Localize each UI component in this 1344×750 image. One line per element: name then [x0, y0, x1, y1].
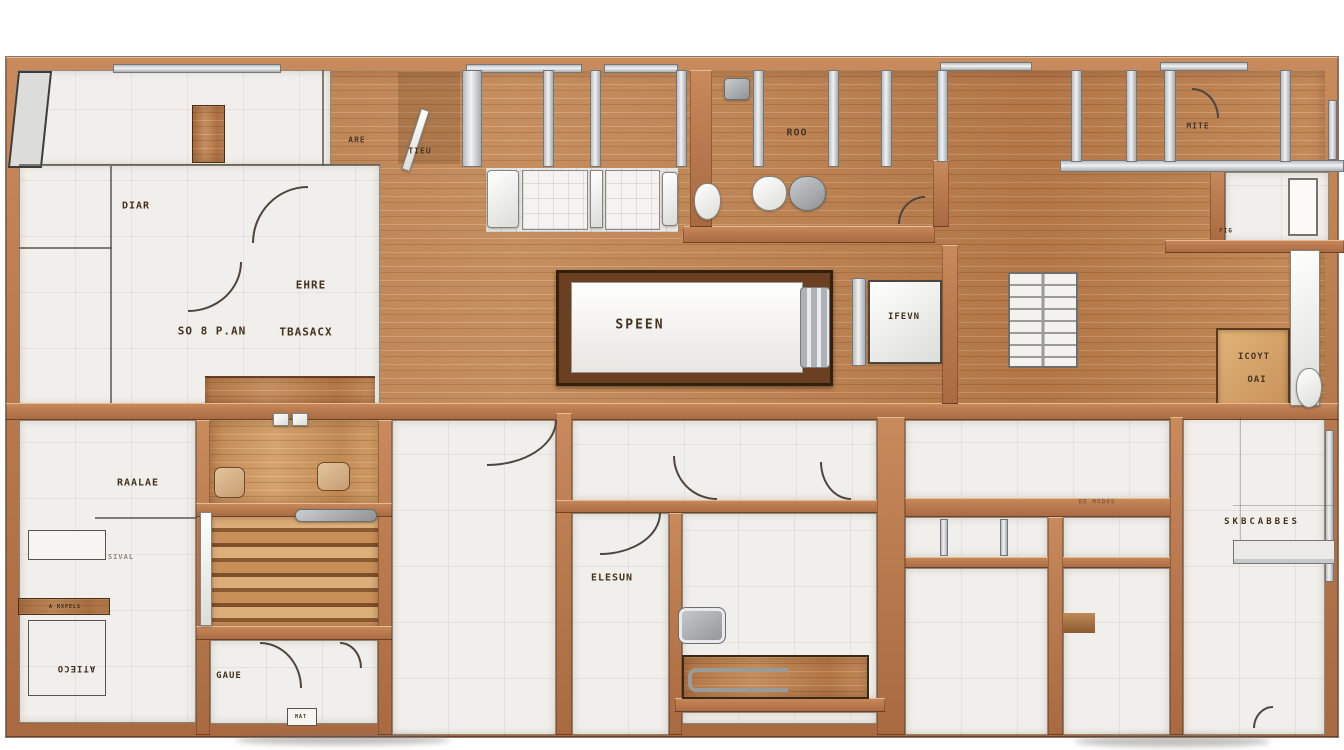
room-lower-center-strip — [682, 712, 877, 724]
wall-label-demodos: DE MODOS — [1079, 499, 1116, 506]
wall-v-hall — [556, 413, 572, 735]
interior-line — [19, 164, 380, 166]
wall-v-far-right — [1170, 417, 1183, 735]
room-label-tieu: TIEU — [408, 147, 431, 156]
room-lower-mid-a — [905, 568, 1048, 735]
locker-divider-2 — [1000, 519, 1008, 556]
room-upper-left-top — [19, 70, 331, 166]
room-label-mite: MITE — [1186, 122, 1209, 131]
wall-v-fridge — [942, 245, 958, 404]
interior-line — [19, 247, 112, 249]
room-label-elesun: ELESUN — [591, 573, 633, 584]
bath-divider — [590, 170, 603, 228]
room-lower-right-top — [905, 420, 1170, 499]
table-bolster — [800, 287, 830, 368]
toilet-fixture — [694, 183, 721, 220]
table-top — [571, 282, 803, 373]
room-label-speen: SPEEN — [615, 318, 664, 333]
pillar-8 — [937, 70, 948, 162]
room-label-roo: ROO — [786, 128, 807, 139]
room-label-gaue: GAUE — [216, 671, 242, 681]
room-label-oai: OAI — [1247, 375, 1266, 385]
wood-shelf-nub — [1063, 613, 1095, 633]
pillar-1 — [462, 70, 482, 167]
bed-fixture — [662, 172, 678, 226]
pillar-7 — [881, 70, 892, 167]
chair-fixture — [214, 467, 245, 498]
toilet-fixture — [1296, 368, 1322, 408]
sink-fixture — [678, 607, 726, 644]
room-label-are: ARE — [348, 136, 365, 145]
ground-shadow — [1075, 736, 1270, 747]
shower-grid — [522, 170, 588, 230]
window-right-edge-b — [1328, 100, 1337, 160]
bunk-rail — [200, 512, 212, 626]
room-lower-mid-b — [1063, 568, 1170, 735]
chair-fixture — [317, 462, 350, 491]
room-label-sival: SIVAL — [108, 553, 134, 561]
room-label-soban: SO 8 P.AN — [178, 325, 247, 338]
wall-h-lockers-top — [905, 498, 1183, 517]
pillar-10 — [1126, 70, 1137, 162]
wall-v-lower-left-b — [378, 420, 392, 735]
room-label-icoyt: ICOYT — [1238, 352, 1270, 362]
pillar-12 — [1280, 70, 1291, 162]
pillar-9 — [1071, 70, 1082, 162]
pillar-fridge — [852, 278, 866, 366]
floor-plan: ARE TIEU DIAR EHRE SO 8 P.AN TBASACX SPE… — [0, 0, 1344, 750]
interior-line — [322, 70, 324, 166]
pillar-4 — [676, 70, 687, 167]
counter-nub — [292, 413, 308, 426]
interior-line — [95, 517, 197, 519]
icoyt-cabinet — [1216, 328, 1290, 412]
fridge-unit — [868, 280, 942, 364]
interior-line — [110, 166, 112, 403]
wall-v-center — [933, 160, 949, 227]
counter-upper-left — [205, 376, 375, 403]
cistern-tank — [724, 78, 750, 100]
wall-h-lower-center — [556, 500, 880, 513]
wall-main-horizontal — [6, 403, 1338, 420]
locker-row-right — [1063, 517, 1170, 558]
cabinet-outline — [28, 620, 106, 696]
toilet-fixture — [789, 176, 826, 211]
counter-nub — [273, 413, 289, 426]
toilet-fixture — [752, 176, 787, 211]
bed-fixture — [487, 170, 519, 228]
window-ledge — [1233, 540, 1335, 564]
bunk-bed-top-view — [210, 517, 378, 627]
glass-wall-right — [1060, 160, 1344, 172]
room-lower-hall-left — [392, 420, 556, 735]
wall-h-lockers-bottom — [905, 557, 1183, 568]
window-bar-top-2 — [466, 64, 582, 73]
room-lower-far-right — [1183, 417, 1325, 735]
room-label-atieco: ATIECO — [57, 663, 96, 673]
room-label-ifevn: IFEVN — [888, 312, 920, 322]
shelf-unit-top-view — [1008, 272, 1078, 368]
bench-pipe — [688, 668, 788, 692]
window-bar-top-1 — [113, 64, 281, 73]
wall-v-lower-mid — [1048, 517, 1063, 735]
wall-top-center — [683, 226, 935, 243]
pillar-2 — [543, 70, 554, 167]
shelf-label-anxpels: A NXPELS — [49, 604, 81, 610]
room-label-fig: FIG — [1219, 228, 1233, 235]
bunk-headboard — [295, 509, 377, 522]
room-label-tbasacx: TBASACX — [279, 326, 332, 339]
window-bar-top-4 — [940, 62, 1032, 71]
interior-line — [1233, 505, 1333, 506]
room-label-diar: DIAR — [122, 201, 150, 212]
box-label-mat: MAT — [295, 714, 307, 720]
room-label-raalae: RAALAE — [117, 478, 159, 489]
wardrobe-upper-left — [192, 105, 225, 163]
window-bar-top-3 — [604, 64, 678, 73]
locker-row-left — [905, 517, 1048, 558]
ground-shadow — [235, 735, 450, 745]
pillar-11 — [1164, 70, 1176, 162]
pillar-6 — [828, 70, 839, 167]
wall-h-bench — [675, 698, 885, 712]
pillar-5 — [753, 70, 764, 167]
shower-grid — [605, 170, 660, 230]
wall-v-center-thick — [877, 417, 905, 735]
room-label-skbchbaes: SKBCABBES — [1224, 517, 1300, 527]
pillar-3 — [590, 70, 601, 167]
counter-outline — [28, 530, 106, 560]
locker-divider-1 — [940, 519, 948, 556]
room-label-ehre: EHRE — [296, 279, 327, 292]
wall-h-bunk — [196, 626, 392, 640]
window-frame — [1288, 178, 1318, 236]
